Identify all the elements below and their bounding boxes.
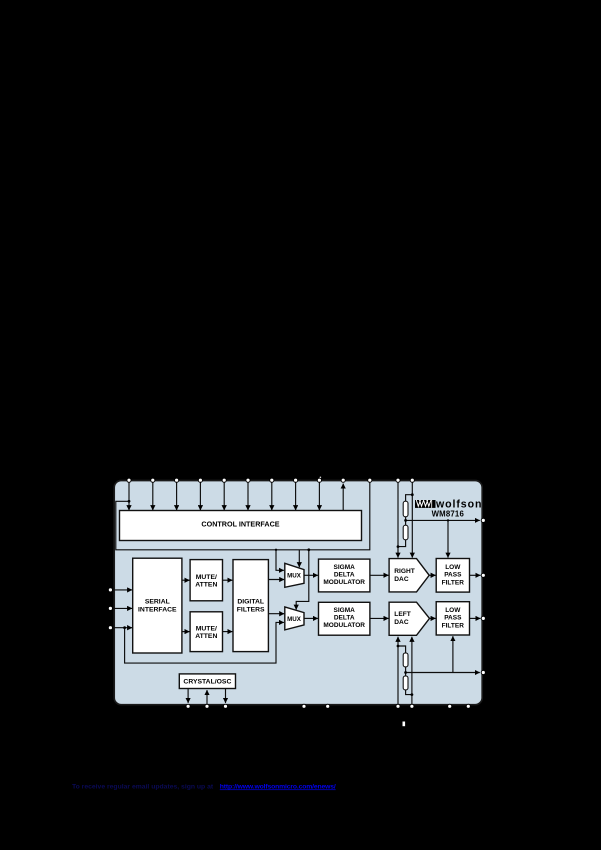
svg-text:SIGMA: SIGMA: [334, 564, 356, 571]
svg-text:CRYSTAL/OSC: CRYSTAL/OSC: [183, 679, 231, 686]
svg-text:CONTROL INTERFACE: CONTROL INTERFACE: [201, 520, 279, 529]
svg-text:ATTEN: ATTEN: [195, 582, 217, 589]
svg-text:DELTA: DELTA: [334, 571, 355, 578]
svg-text:FILTER: FILTER: [442, 622, 465, 629]
svg-text:MUTE/: MUTE/: [196, 625, 217, 632]
svg-text:wolfson: wolfson: [435, 499, 482, 511]
svg-text:To receive regular email updat: To receive regular email updates, sign u…: [72, 783, 214, 790]
svg-text:MUTE/: MUTE/: [196, 574, 217, 581]
svg-text:MODULATOR: MODULATOR: [323, 579, 365, 586]
svg-text:http://www.wolfsonmicro.com/en: http://www.wolfsonmicro.com/enews/: [220, 783, 336, 790]
svg-text:PASS: PASS: [444, 615, 462, 622]
svg-text:MUX: MUX: [287, 616, 302, 623]
svg-text:DIGITAL: DIGITAL: [237, 598, 264, 605]
svg-text:LOW: LOW: [445, 564, 461, 571]
svg-text:SIGMA: SIGMA: [334, 607, 356, 614]
svg-text:MODULATOR: MODULATOR: [323, 622, 365, 629]
svg-text:DELTA: DELTA: [334, 615, 355, 622]
svg-text:INTERFACE: INTERFACE: [138, 606, 177, 613]
svg-text:DAC: DAC: [394, 576, 409, 583]
svg-text:LOW: LOW: [445, 607, 461, 614]
svg-text:MUX: MUX: [287, 573, 302, 580]
svg-text:DAC: DAC: [394, 619, 409, 626]
svg-text:PASS: PASS: [444, 572, 462, 579]
svg-text:RIGHT: RIGHT: [394, 568, 415, 575]
svg-text:FILTERS: FILTERS: [237, 606, 265, 613]
svg-text:FILTER: FILTER: [442, 579, 465, 586]
svg-text:ATTEN: ATTEN: [195, 633, 217, 640]
svg-text:LEFT: LEFT: [394, 611, 410, 618]
svg-text:WM8716: WM8716: [432, 510, 465, 519]
svg-text:SERIAL: SERIAL: [145, 598, 170, 605]
